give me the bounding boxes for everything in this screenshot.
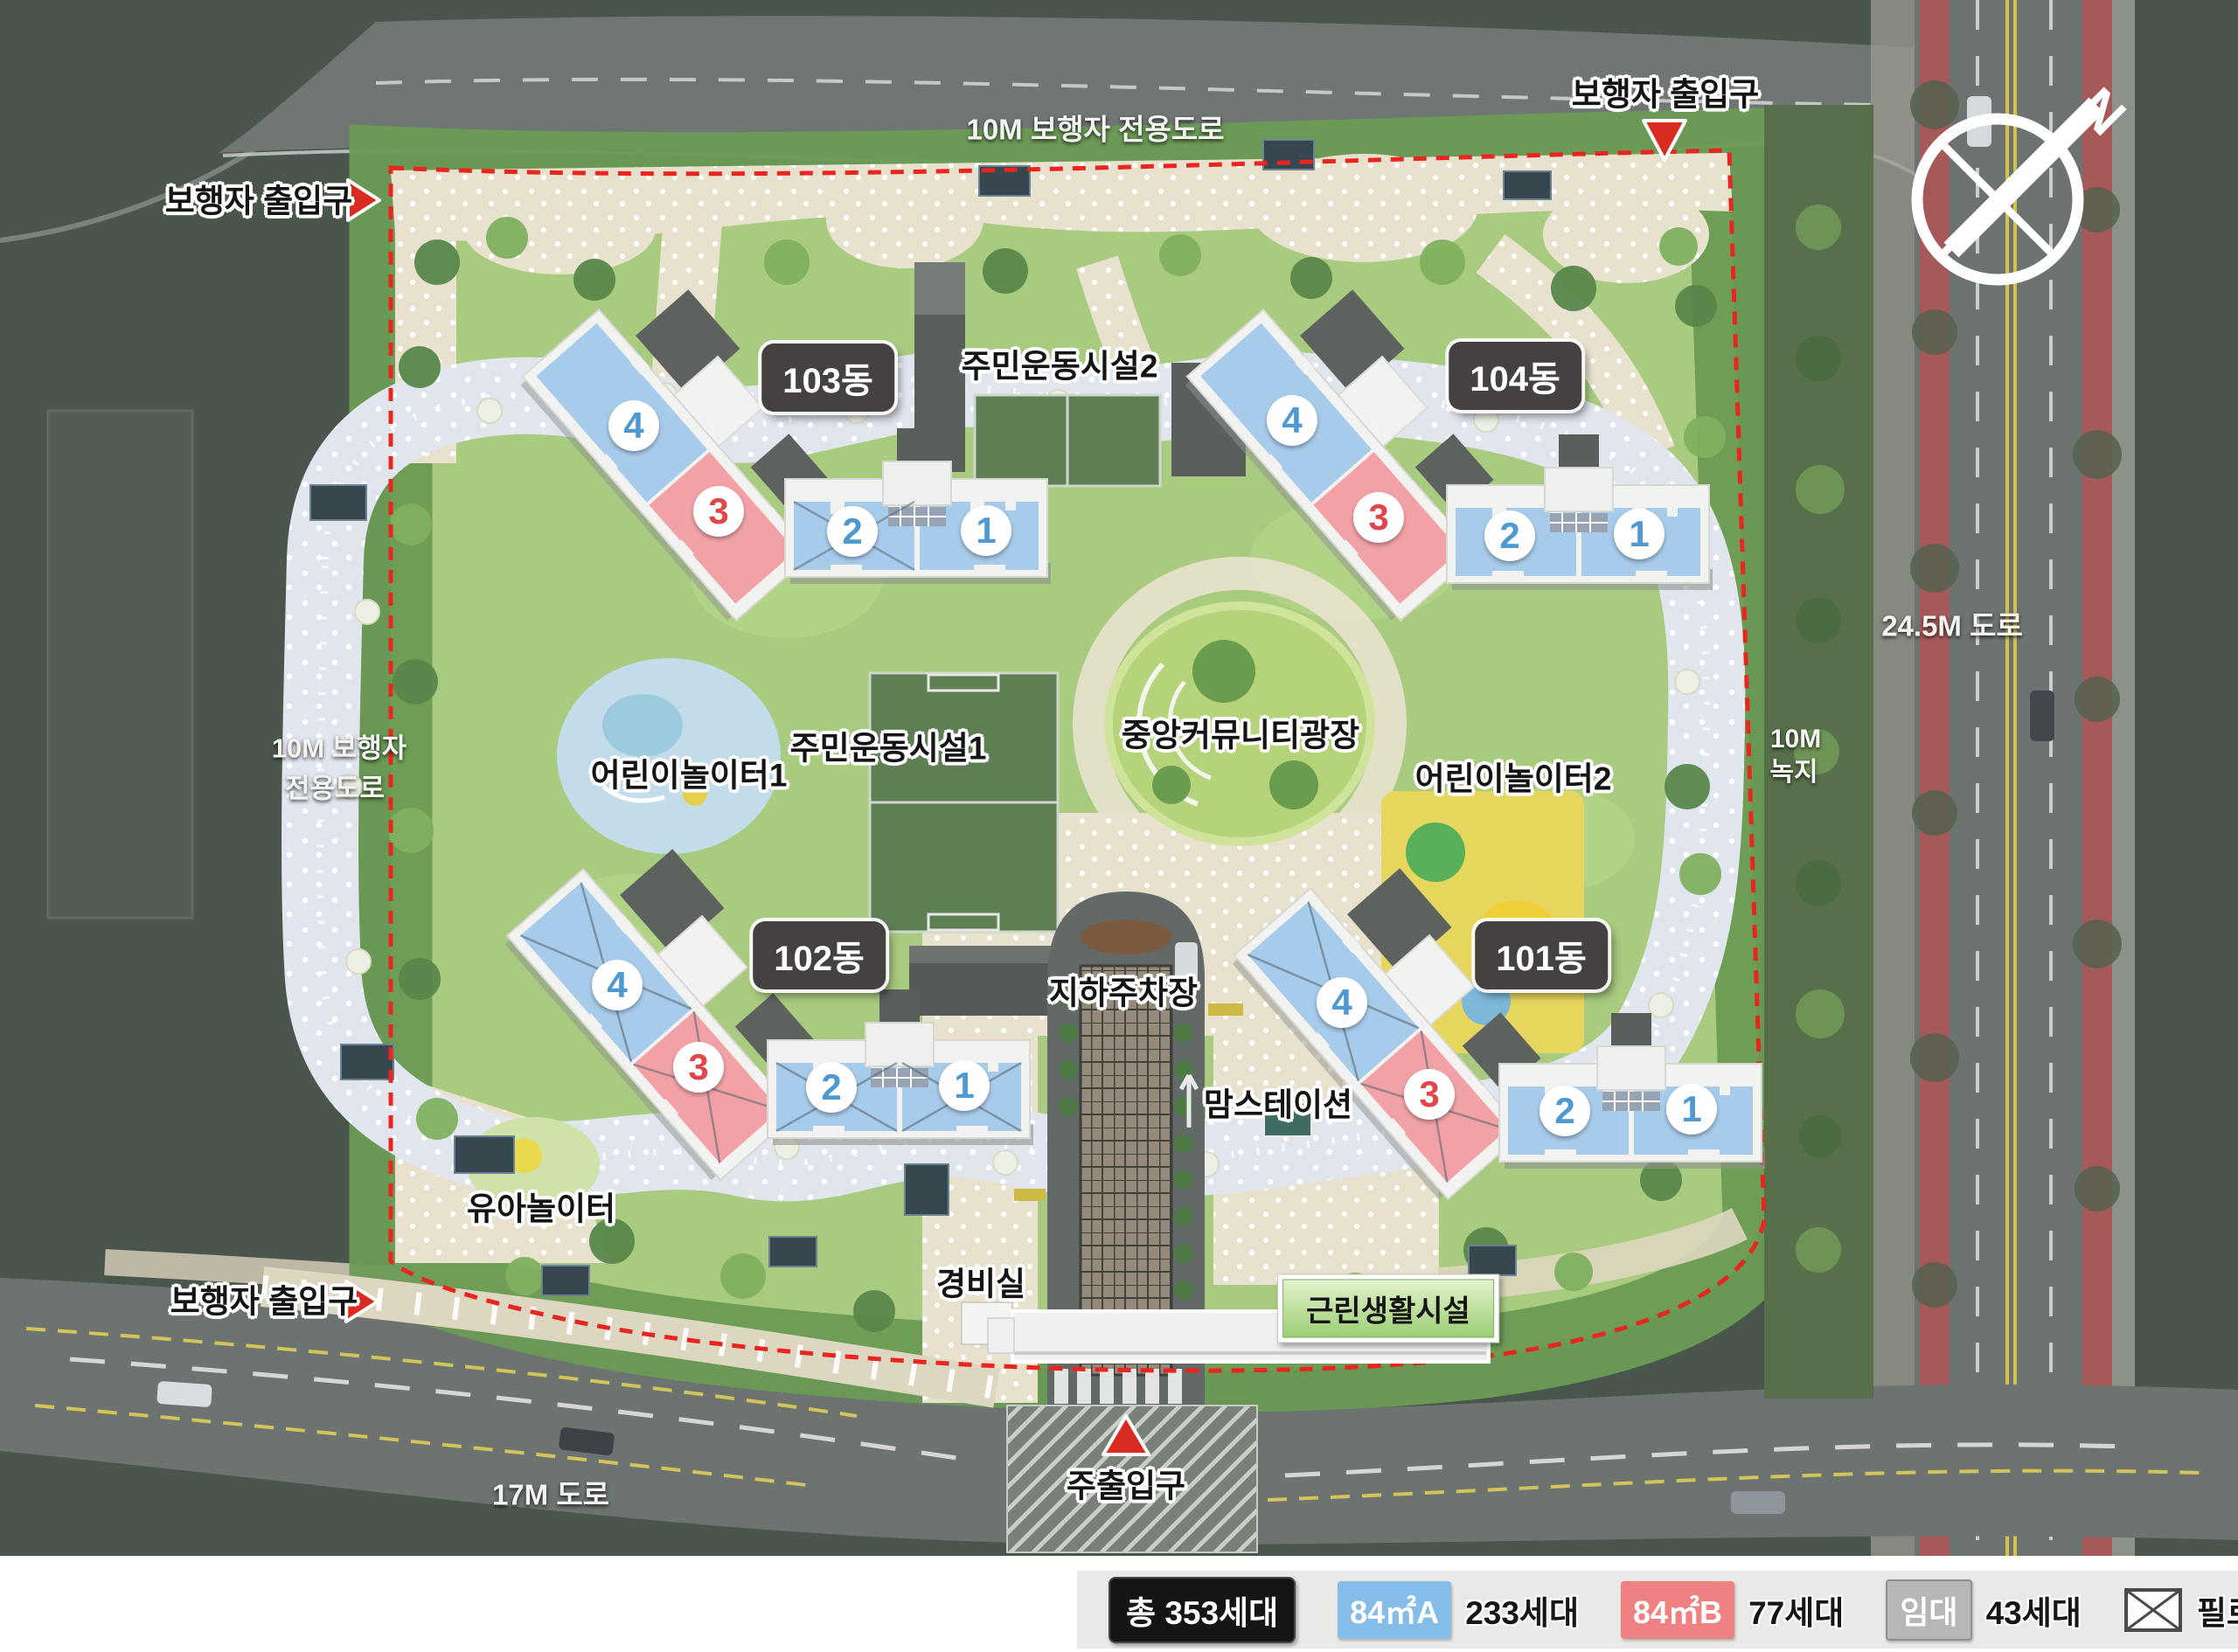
site-plan-page: 10M 보행자 전용도로 10M 보행자 전용도로 24.5M 도로 10M 녹… (0, 0, 2238, 1652)
unit-circle-104-3: 3 (1353, 492, 1404, 543)
unit-circle-104-2: 2 (1484, 510, 1535, 561)
road-label-left-line1: 10M 보행자 (272, 735, 407, 762)
legend-item-84b: 84㎡B 77세대 (1621, 1581, 1844, 1639)
unit-circle-103-4: 4 (608, 400, 659, 451)
pedestrian-entrance-label-bottom-left: 보행자 출입구 (170, 1286, 358, 1318)
piloti-icon (2123, 1587, 2183, 1633)
facility-label-toddler-playground: 유아놀이터 (467, 1193, 615, 1225)
road-label-left-line2: 전용도로 (285, 775, 385, 802)
unit-circle-104-4: 4 (1267, 395, 1317, 446)
facility-label-guard-office: 경비실 (936, 1268, 1025, 1301)
green-strip-label-line2: 녹지 (1769, 760, 1818, 786)
unit-circle-103-1: 1 (961, 505, 1011, 556)
legend-count-84a: 233세대 (1465, 1586, 1579, 1634)
facility-label-sports2: 주민운동시설2 (962, 351, 1158, 383)
unit-circle-103-2: 2 (827, 506, 878, 557)
road-label-top: 10M 보행자 전용도로 (966, 115, 1224, 144)
legend-count-84b: 77세대 (1748, 1586, 1844, 1634)
road-label-bottom: 17M 도로 (492, 1481, 609, 1510)
road-label-right: 24.5M 도로 (1881, 612, 2023, 641)
unit-circle-101-3: 3 (1404, 1069, 1455, 1120)
facility-label-retail: 근린생활시설 (1277, 1274, 1499, 1343)
pedestrian-entrance-label-top-right: 보행자 출입구 (1572, 79, 1760, 111)
building-badge-101: 101동 (1475, 921, 1608, 989)
facility-label-sports1: 주민운동시설1 (790, 732, 987, 765)
main-entrance-label: 주출입구 (1067, 1470, 1185, 1503)
pedestrian-entrance-label-top-left: 보행자 출입구 (165, 185, 353, 218)
facility-label-playground1: 어린이놀이터1 (591, 760, 788, 792)
legend-label-piloti: 필로티 (2197, 1586, 2238, 1634)
facility-label-parking: 지하주차장 (1049, 977, 1198, 1010)
site-plan-map: 10M 보행자 전용도로 10M 보행자 전용도로 24.5M 도로 10M 녹… (0, 0, 2238, 1556)
legend-tag-84b: 84㎡B (1621, 1581, 1734, 1639)
green-strip-label-line1: 10M (1770, 726, 1821, 753)
legend-item-rental: 임대 43세대 (1886, 1579, 2082, 1641)
children-playground-1 (557, 658, 781, 854)
unit-circle-101-1: 1 (1666, 1084, 1717, 1135)
legend: 총 353세대 84㎡A 233세대 84㎡B 77세대 임대 43세대 필로티 (1077, 1571, 2238, 1649)
unit-circle-102-4: 4 (592, 960, 643, 1010)
legend-count-rental: 43세대 (1986, 1586, 2082, 1634)
unit-circle-102-1: 1 (939, 1060, 990, 1111)
unit-circle-101-4: 4 (1317, 977, 1367, 1028)
building-badge-104: 104동 (1449, 342, 1581, 410)
legend-tag-rental: 임대 (1886, 1579, 1971, 1641)
legend-total-households: 총 353세대 (1109, 1577, 1296, 1643)
unit-circle-102-2: 2 (806, 1062, 857, 1113)
unit-circle-102-3: 3 (673, 1042, 724, 1093)
right-road (1871, 0, 2135, 1556)
building-badge-103: 103동 (761, 344, 894, 412)
unit-circle-104-1: 1 (1614, 509, 1665, 559)
legend-item-84a: 84㎡A 233세대 (1338, 1581, 1579, 1639)
legend-strip: 총 353세대 84㎡A 233세대 84㎡B 77세대 임대 43세대 필로티 (0, 1556, 2238, 1652)
legend-item-piloti: 필로티 (2123, 1586, 2238, 1634)
unit-circle-101-2: 2 (1539, 1086, 1590, 1136)
facility-label-mom-station: 맘스테이션 (1204, 1089, 1352, 1121)
facility-label-plaza: 중앙커뮤니티광장 (1122, 719, 1359, 752)
unit-circle-103-3: 3 (693, 486, 744, 537)
building-badge-102: 102동 (753, 921, 886, 989)
legend-tag-84a: 84㎡A (1338, 1581, 1451, 1639)
facility-label-playground2: 어린이놀이터2 (1415, 763, 1612, 795)
